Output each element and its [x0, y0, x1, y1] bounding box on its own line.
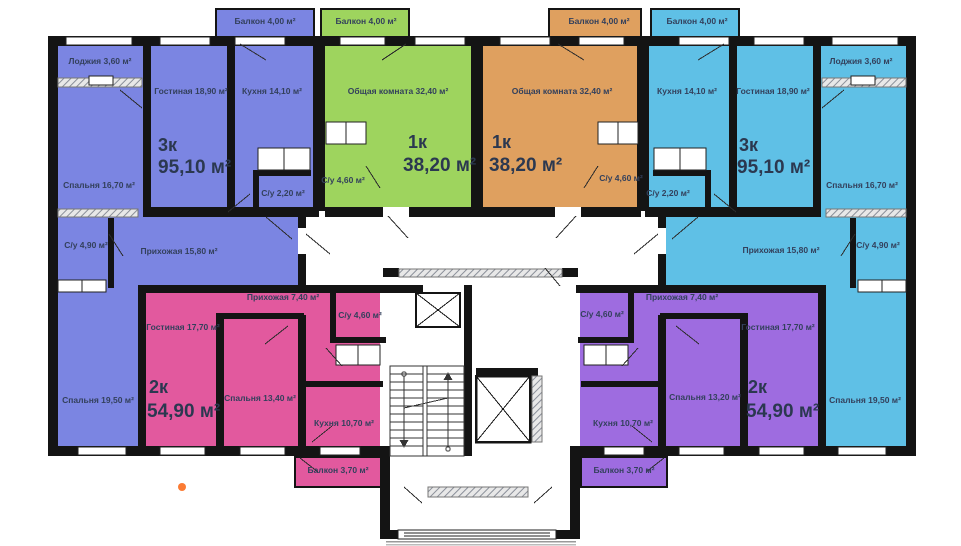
apartment-area-3k-right: 95,10 м² [737, 158, 810, 177]
room-label-bedroom: Спальня 19,50 м² [62, 396, 134, 406]
room-label-wc: С/у 4,60 м² [318, 176, 368, 186]
room-label-bedroom: Спальня 13,20 м² [669, 393, 741, 403]
apartment-type-1k-right: 1к [492, 133, 511, 151]
room-label-hallway: Прихожая 15,80 м² [140, 247, 217, 257]
room-label-loggia: Лоджия 3,60 м² [68, 57, 131, 67]
room-label-main: Общая комната 32,40 м² [348, 87, 449, 97]
room-label-hallway: Прихожая 7,40 м² [646, 293, 718, 303]
room-label-balcony: Балкон 4,00 м² [335, 17, 396, 27]
room-label-wc: С/у 2,20 м² [258, 189, 308, 199]
apartment-area-1k-left: 38,20 м² [403, 156, 476, 175]
apartment-area-2k-right: 54,90 м² [746, 402, 819, 421]
room-label-kitchen: Кухня 10,70 м² [314, 419, 374, 429]
apartment-type-2k-right: 2к [748, 378, 767, 396]
room-label-bedroom: Спальня 16,70 м² [826, 181, 898, 191]
apartment-3k-right-area[interactable] [826, 287, 906, 446]
room-label-kitchen: Кухня 14,10 м² [242, 87, 302, 97]
room-label-kitchen: Кухня 14,10 м² [657, 87, 717, 97]
apartment-area-3k-left: 95,10 м² [158, 158, 231, 177]
room-label-wc: С/у 4,60 м² [335, 311, 385, 321]
apartment-type-1k-left: 1к [408, 133, 427, 151]
apartment-type-3k-left: 3к [158, 136, 177, 154]
room-label-wc: С/у 2,20 м² [643, 189, 693, 199]
apartment-area-1k-right: 38,20 м² [489, 156, 562, 175]
room-label-wc: С/у 4,60 м² [577, 310, 627, 320]
floor-plan: Балкон 4,00 м² Лоджия 3,60 м² Гостиная 1… [0, 0, 961, 546]
room-label-kitchen: Кухня 10,70 м² [593, 419, 653, 429]
room-label-bedroom: Спальня 19,50 м² [829, 396, 901, 406]
room-label-living: Гостиная 18,90 м² [736, 87, 810, 97]
room-label-main: Общая комната 32,40 м² [512, 87, 613, 97]
apartment-area-2k-left: 54,90 м² [147, 402, 220, 421]
room-label-loggia: Лоджия 3,60 м² [829, 57, 892, 67]
room-label-living: Гостиная 17,70 м² [741, 323, 815, 333]
room-label-balcony: Балкон 4,00 м² [568, 17, 629, 27]
room-label-living: Гостиная 18,90 м² [154, 87, 228, 97]
room-label-balcony: Балкон 4,00 м² [666, 17, 727, 27]
room-label-balcony: Балкон 3,70 м² [307, 466, 368, 476]
room-label-wc: С/у 4,90 м² [61, 241, 111, 251]
apartment-type-2k-left: 2к [149, 378, 168, 396]
room-label-wc: С/у 4,60 м² [596, 174, 646, 184]
room-label-hallway: Прихожая 15,80 м² [742, 246, 819, 256]
room-label-bedroom: Спальня 13,40 м² [224, 394, 296, 404]
accent-dot [178, 483, 186, 491]
room-label-wc: С/у 4,90 м² [853, 241, 903, 251]
apartment-3k-left-area[interactable] [58, 287, 138, 446]
room-label-balcony: Балкон 3,70 м² [593, 466, 654, 476]
apartment-type-3k-right: 3к [739, 136, 758, 154]
building-entrance[interactable] [386, 530, 576, 546]
elevator-large [476, 376, 530, 442]
room-label-hallway: Прихожая 7,40 м² [247, 293, 319, 303]
room-label-bedroom: Спальня 16,70 м² [63, 181, 135, 191]
elevator-small [416, 293, 460, 327]
room-label-balcony: Балкон 4,00 м² [234, 17, 295, 27]
room-label-living: Гостиная 17,70 м² [146, 323, 220, 333]
staircase [390, 366, 464, 456]
